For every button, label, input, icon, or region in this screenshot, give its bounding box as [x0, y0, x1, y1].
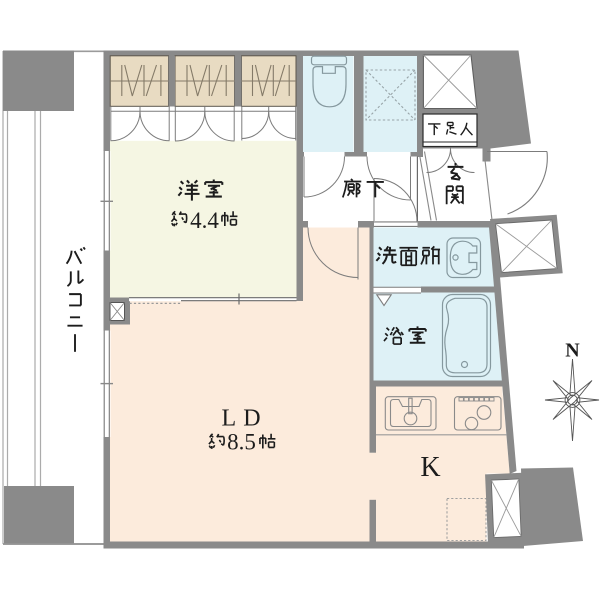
svg-text:N: N — [565, 340, 580, 362]
svg-text:4.4: 4.4 — [190, 208, 219, 233]
svg-text:L D: L D — [221, 406, 261, 432]
svg-text:K: K — [420, 452, 440, 483]
svg-text:8.5: 8.5 — [227, 430, 256, 455]
